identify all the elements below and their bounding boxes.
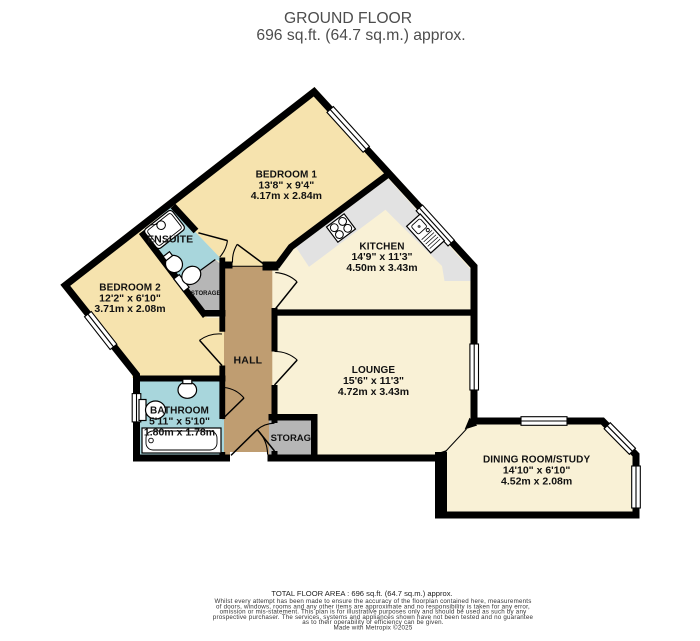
svg-text:4.50m x 3.43m: 4.50m x 3.43m (346, 262, 417, 274)
svg-text:ENSUITE: ENSUITE (147, 234, 193, 246)
svg-text:STORAGE: STORAGE (191, 291, 221, 297)
svg-text:696 sq.ft. (64.7 sq.m.) approx: 696 sq.ft. (64.7 sq.m.) approx. (256, 27, 465, 44)
svg-text:TOTAL FLOOR AREA : 696 sq.ft.: TOTAL FLOOR AREA : 696 sq.ft. (64.7 sq.m… (271, 589, 452, 598)
svg-text:STORAGE: STORAGE (271, 433, 318, 444)
svg-text:HALL: HALL (234, 355, 263, 367)
svg-text:4.17m x 2.84m: 4.17m x 2.84m (251, 190, 322, 202)
svg-text:4.72m x 3.43m: 4.72m x 3.43m (338, 386, 409, 398)
svg-text:1.80m x 1.78m: 1.80m x 1.78m (144, 427, 215, 439)
svg-text:4.52m x 2.08m: 4.52m x 2.08m (501, 476, 572, 488)
svg-text:3.71m x 2.08m: 3.71m x 2.08m (94, 303, 165, 315)
svg-text:GROUND FLOOR: GROUND FLOOR (284, 10, 412, 27)
svg-text:Made with Metropix ©2025: Made with Metropix ©2025 (334, 625, 413, 632)
